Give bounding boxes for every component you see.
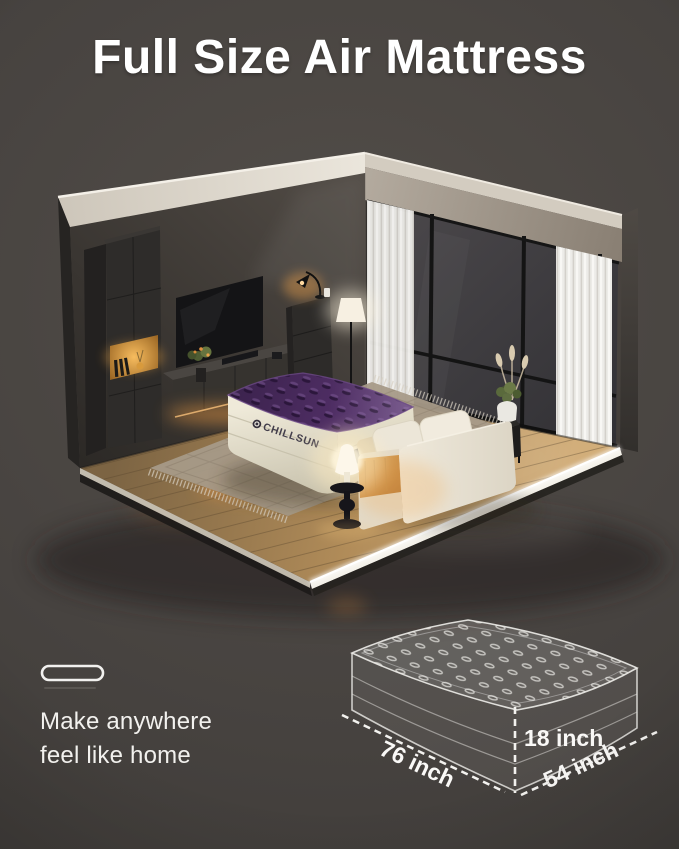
tagline-text: Make anywhere feel like home <box>40 705 212 773</box>
floor-lamp-shade <box>336 298 366 322</box>
mattress-outline-icon <box>40 664 212 683</box>
white-vase <box>497 401 517 422</box>
mug <box>324 288 330 297</box>
product-infographic: Full Size Air Mattress <box>0 0 679 849</box>
tagline-line-1: Make anywhere <box>40 705 212 739</box>
right-wall-outer-edge <box>620 208 638 452</box>
tagline-line-2: feel like home <box>40 739 212 773</box>
tagline-block: Make anywhere feel like home <box>40 664 212 773</box>
dimension-diagram: 76 inch 18 inch 54 inch <box>342 620 657 795</box>
console-device <box>272 352 282 359</box>
wardrobe-cabinet <box>84 226 164 456</box>
curtain-right <box>556 246 612 448</box>
page-title: Full Size Air Mattress <box>0 30 679 85</box>
icon-reflection <box>44 687 96 689</box>
